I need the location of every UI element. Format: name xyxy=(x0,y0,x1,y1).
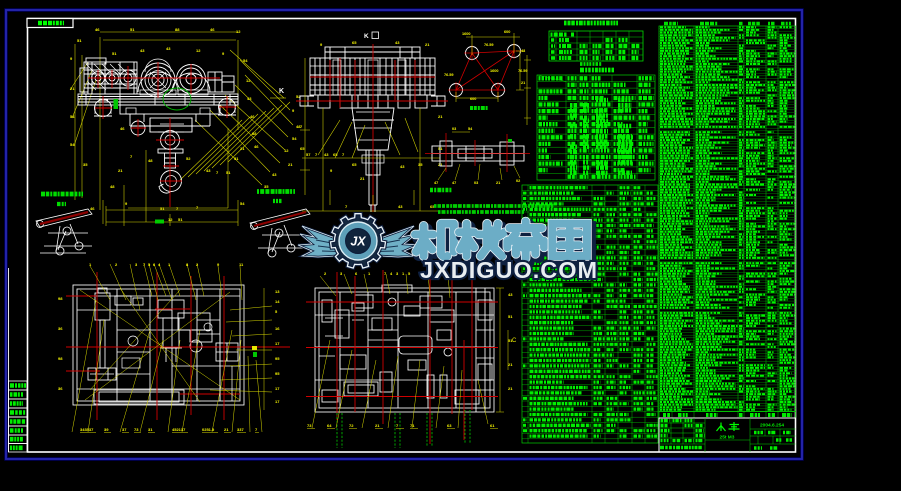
svg-text:72: 72 xyxy=(349,423,354,428)
svg-text:K: K xyxy=(364,33,369,40)
svg-text:C: C xyxy=(512,338,517,344)
svg-text:25t M3: 25t M3 xyxy=(720,435,735,441)
svg-text:98: 98 xyxy=(58,356,63,361)
svg-text:35: 35 xyxy=(418,162,423,167)
svg-text:36: 36 xyxy=(58,386,63,391)
svg-text:46: 46 xyxy=(250,114,255,119)
svg-text:98: 98 xyxy=(58,296,63,301)
svg-text:1600: 1600 xyxy=(490,69,498,73)
svg-text:14: 14 xyxy=(275,299,280,304)
svg-text:51: 51 xyxy=(178,217,183,222)
svg-text:43: 43 xyxy=(140,48,145,53)
svg-text:43: 43 xyxy=(521,49,525,53)
svg-text:43: 43 xyxy=(272,172,277,177)
svg-text:51: 51 xyxy=(77,38,82,43)
svg-text:2004.6.254: 2004.6.254 xyxy=(760,423,784,429)
svg-text:37: 37 xyxy=(122,427,127,432)
svg-text:88: 88 xyxy=(175,27,180,32)
svg-text:65: 65 xyxy=(300,146,305,151)
svg-text:43: 43 xyxy=(247,96,252,101)
svg-text:21: 21 xyxy=(70,86,75,91)
svg-text:46: 46 xyxy=(90,206,95,211)
svg-text:600: 600 xyxy=(470,97,476,101)
svg-text:12: 12 xyxy=(284,148,289,153)
svg-text:65: 65 xyxy=(352,162,357,167)
svg-text:43: 43 xyxy=(398,204,403,209)
svg-text:JXDIGUO.COM: JXDIGUO.COM xyxy=(420,257,598,283)
svg-text:54: 54 xyxy=(70,142,75,147)
svg-text:65: 65 xyxy=(352,40,357,45)
svg-text:43: 43 xyxy=(324,152,329,157)
svg-text:73: 73 xyxy=(307,423,312,428)
svg-text:54: 54 xyxy=(292,136,297,141)
svg-text:88: 88 xyxy=(252,131,257,136)
svg-text:452137: 452137 xyxy=(172,427,186,432)
svg-text:21: 21 xyxy=(240,146,245,151)
svg-text:1600: 1600 xyxy=(462,32,470,36)
svg-text:51: 51 xyxy=(234,156,239,161)
svg-text:21: 21 xyxy=(375,423,380,428)
svg-text:46: 46 xyxy=(95,27,100,32)
svg-text:12: 12 xyxy=(236,29,241,34)
svg-text:64: 64 xyxy=(327,423,332,428)
svg-text:71: 71 xyxy=(410,423,415,428)
svg-text:61: 61 xyxy=(490,423,495,428)
svg-text:51: 51 xyxy=(160,206,165,211)
svg-text:343537: 343537 xyxy=(80,427,94,432)
svg-text:73: 73 xyxy=(134,427,139,432)
svg-text:21: 21 xyxy=(508,386,513,391)
svg-text:39: 39 xyxy=(104,427,109,432)
svg-text:52: 52 xyxy=(186,156,191,161)
svg-text:600: 600 xyxy=(504,30,510,34)
svg-text:43: 43 xyxy=(508,292,513,297)
svg-text:21: 21 xyxy=(438,114,443,119)
svg-text:47: 47 xyxy=(452,181,456,185)
svg-text:48: 48 xyxy=(148,158,153,163)
svg-text:57: 57 xyxy=(306,152,311,157)
svg-text:21: 21 xyxy=(224,427,229,432)
svg-text:95: 95 xyxy=(275,371,280,376)
svg-text:JX: JX xyxy=(350,235,366,249)
svg-text:31: 31 xyxy=(148,427,153,432)
svg-text:51: 51 xyxy=(226,170,231,175)
svg-text:21: 21 xyxy=(425,42,430,47)
svg-text:46: 46 xyxy=(120,126,125,131)
svg-text:35: 35 xyxy=(83,162,88,167)
svg-text:46: 46 xyxy=(254,144,259,149)
svg-text:43: 43 xyxy=(395,40,400,45)
svg-text:17: 17 xyxy=(275,341,280,346)
svg-text:43: 43 xyxy=(400,164,405,169)
svg-text:35: 35 xyxy=(264,184,269,189)
svg-text:47: 47 xyxy=(434,181,438,185)
svg-text:48: 48 xyxy=(110,184,115,189)
svg-text:65: 65 xyxy=(333,152,338,157)
svg-text:43: 43 xyxy=(166,46,171,51)
svg-text:17: 17 xyxy=(275,386,280,391)
svg-text:51: 51 xyxy=(508,314,513,319)
svg-text:51: 51 xyxy=(112,51,117,56)
svg-text:54: 54 xyxy=(240,201,245,206)
svg-text:76.59: 76.59 xyxy=(518,69,528,73)
svg-text:0251.5: 0251.5 xyxy=(202,427,215,432)
svg-text:17: 17 xyxy=(275,399,280,404)
svg-text:12: 12 xyxy=(196,48,201,53)
svg-text:46: 46 xyxy=(210,27,215,32)
svg-text:43: 43 xyxy=(206,168,211,173)
svg-text:03: 03 xyxy=(474,181,478,185)
svg-text:16: 16 xyxy=(275,326,280,331)
svg-text:63: 63 xyxy=(447,423,452,428)
svg-text:54: 54 xyxy=(243,58,248,63)
svg-text:76.59: 76.59 xyxy=(484,43,494,47)
svg-text:12: 12 xyxy=(246,78,251,83)
svg-text:21: 21 xyxy=(360,176,365,181)
svg-text:03: 03 xyxy=(452,127,456,131)
svg-text:21: 21 xyxy=(496,181,500,185)
svg-text:51: 51 xyxy=(438,146,443,151)
svg-text:21: 21 xyxy=(521,81,525,85)
svg-text:K: K xyxy=(279,88,284,95)
svg-text:36: 36 xyxy=(58,326,63,331)
svg-text:02: 02 xyxy=(516,179,520,183)
svg-text:54: 54 xyxy=(70,114,75,119)
svg-text:21: 21 xyxy=(118,168,123,173)
svg-text:76.59: 76.59 xyxy=(444,73,454,77)
svg-text:95: 95 xyxy=(275,356,280,361)
svg-text:337: 337 xyxy=(237,427,244,432)
svg-text:12: 12 xyxy=(168,217,173,222)
svg-text:13: 13 xyxy=(275,289,280,294)
svg-text:21: 21 xyxy=(508,362,513,367)
svg-text:51: 51 xyxy=(130,27,135,32)
svg-text:21: 21 xyxy=(288,162,293,167)
